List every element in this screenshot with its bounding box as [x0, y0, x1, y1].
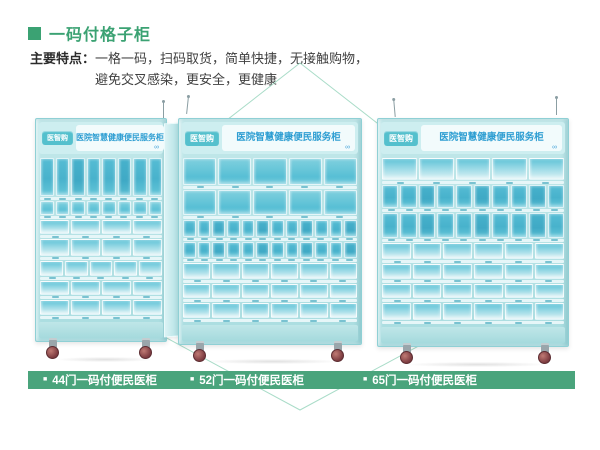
- locker-cell: [212, 303, 239, 318]
- locker-cell: [133, 239, 162, 255]
- price-tag: [346, 259, 353, 261]
- locker-cell: [535, 303, 564, 320]
- locker-cell: [437, 185, 453, 207]
- price-tag: [406, 239, 413, 241]
- locker-cell: [330, 303, 357, 318]
- locker-cell: [400, 213, 416, 238]
- price-tag: [197, 216, 204, 218]
- locker-cell: [330, 263, 357, 279]
- locker-cell: [511, 185, 527, 207]
- shelf-edge: [382, 321, 564, 324]
- price-tag: [545, 280, 552, 282]
- price-tag: [136, 198, 143, 200]
- locker-cell: [474, 303, 503, 320]
- locker-cell: [40, 300, 69, 315]
- locker-cell: [382, 264, 411, 278]
- locker-cell: [437, 213, 453, 238]
- locker-cell: [286, 242, 299, 258]
- price-tag: [274, 259, 281, 261]
- locker-cell: [133, 220, 162, 235]
- price-tag: [303, 238, 310, 240]
- price-tag: [551, 209, 558, 211]
- cabinet-title: 医院智慧健康便民服务柜: [76, 133, 164, 142]
- price-tag: [52, 236, 59, 238]
- brand-badge: 医智购: [384, 131, 418, 146]
- price-tag: [259, 259, 266, 261]
- locker-cell: [102, 201, 116, 215]
- locker-cell: [413, 264, 442, 278]
- shelf-edge: [183, 299, 357, 302]
- locker-cell: [535, 284, 564, 298]
- shelf-edge: [40, 257, 162, 260]
- locker-row: [382, 264, 564, 278]
- locker-row: [183, 220, 357, 237]
- square-bullet-icon: ■: [190, 371, 194, 389]
- price-tag: [551, 239, 558, 241]
- locker-cell: [300, 220, 313, 237]
- locker-cell: [102, 220, 131, 235]
- price-tag: [460, 239, 467, 241]
- price-tag: [454, 300, 461, 302]
- locker-grid: [179, 155, 361, 324]
- locker-cell: [315, 242, 328, 258]
- locker-cell: [40, 201, 54, 215]
- price-tag: [252, 280, 259, 282]
- price-tag: [515, 209, 522, 211]
- locker-row: [382, 303, 564, 320]
- locker-cell: [300, 263, 327, 279]
- price-tag: [82, 317, 89, 319]
- price-tag: [310, 300, 317, 302]
- shelf-edge: [40, 197, 162, 200]
- price-tag: [424, 239, 431, 241]
- caster-wheel: [139, 340, 152, 359]
- cabinet-base: [381, 327, 565, 343]
- price-tag: [216, 238, 223, 240]
- locker-cell: [492, 158, 527, 180]
- cabinet-header: 医智购 医院智慧健康便民服务柜 ∞: [39, 122, 163, 154]
- locker-cell: [548, 185, 564, 207]
- price-tag: [346, 238, 353, 240]
- caster-wheel: [46, 340, 59, 359]
- locker-row: [382, 284, 564, 298]
- caster-wheel: [193, 343, 206, 362]
- price-tag: [216, 259, 223, 261]
- shelf-edge: [183, 186, 357, 189]
- price-tag: [394, 261, 401, 263]
- locker-row: [183, 158, 357, 185]
- shelf-edge: [40, 316, 162, 319]
- price-tag: [332, 259, 339, 261]
- locker-cell: [529, 185, 545, 207]
- locker-cell: [271, 242, 284, 258]
- locker-cell: [87, 201, 101, 215]
- locker-cell: [65, 261, 88, 276]
- price-tag: [136, 216, 143, 218]
- cabinet-52-door: 医智购 医院智慧健康便民服务柜 ∞: [178, 118, 362, 345]
- price-tag: [73, 277, 80, 279]
- locker-cell: [56, 158, 70, 196]
- price-tag: [52, 257, 59, 259]
- price-tag: [232, 186, 239, 188]
- price-tag: [223, 320, 230, 322]
- price-tag: [515, 280, 522, 282]
- locker-row: [382, 243, 564, 260]
- price-tag: [469, 182, 476, 184]
- locker-cell: [492, 185, 508, 207]
- price-tag: [442, 209, 449, 211]
- locker-cell: [40, 239, 69, 255]
- locker-cell: [212, 220, 225, 237]
- locker-cell: [505, 264, 534, 278]
- locker-cell: [443, 284, 472, 298]
- price-tag: [266, 216, 273, 218]
- locker-cell: [456, 185, 472, 207]
- price-tag: [44, 198, 51, 200]
- price-tag: [194, 300, 201, 302]
- locker-row: [40, 201, 162, 215]
- locker-cell: [40, 261, 63, 276]
- price-tag: [397, 182, 404, 184]
- price-tag: [230, 259, 237, 261]
- brand-logo-icon: ∞: [345, 144, 350, 151]
- price-tag: [59, 216, 66, 218]
- locker-cell: [548, 213, 564, 238]
- price-tag: [542, 182, 549, 184]
- locker-cell: [419, 158, 454, 180]
- locker-cell: [505, 284, 534, 298]
- price-tag: [90, 216, 97, 218]
- locker-cell: [87, 158, 101, 196]
- locker-cell: [286, 220, 299, 237]
- price-tag: [515, 300, 522, 302]
- locker-cell: [529, 158, 564, 180]
- locker-cell: [271, 303, 298, 318]
- locker-row: [382, 158, 564, 180]
- brand-logo-icon: ∞: [552, 144, 557, 151]
- price-tag: [122, 277, 129, 279]
- locker-cell: [300, 242, 313, 258]
- price-tag: [497, 239, 504, 241]
- shelf-edge: [382, 260, 564, 263]
- locker-cell: [344, 220, 357, 237]
- price-tag: [310, 320, 317, 322]
- price-tag: [310, 280, 317, 282]
- cabinet-base: [39, 322, 163, 338]
- price-tag: [232, 216, 239, 218]
- price-tag: [75, 216, 82, 218]
- locker-cell: [324, 158, 357, 185]
- locker-cell: [218, 190, 251, 215]
- price-tag: [187, 259, 194, 261]
- price-tag: [424, 280, 431, 282]
- locker-cell: [315, 220, 328, 237]
- price-tag: [394, 280, 401, 282]
- locker-row: [40, 158, 162, 196]
- locker-row: [40, 220, 162, 235]
- locker-cell: [114, 261, 137, 276]
- price-tag: [281, 280, 288, 282]
- locker-cell: [242, 303, 269, 318]
- locker-cell: [271, 263, 298, 279]
- shelf-edge: [183, 238, 357, 241]
- price-tag: [339, 300, 346, 302]
- locker-cell: [474, 284, 503, 298]
- locker-cell: [183, 190, 216, 215]
- locker-cell: [183, 263, 210, 279]
- price-tag: [223, 280, 230, 282]
- locker-cell: [271, 284, 298, 299]
- price-tag: [245, 259, 252, 261]
- price-tag: [201, 259, 208, 261]
- price-tag: [52, 317, 59, 319]
- locker-cell: [474, 243, 503, 260]
- shelf-edge: [382, 299, 564, 302]
- price-tag: [317, 259, 324, 261]
- price-tag: [339, 280, 346, 282]
- locker-cell: [133, 281, 162, 295]
- price-tag: [105, 216, 112, 218]
- locker-cell: [139, 261, 162, 276]
- price-tag: [113, 257, 120, 259]
- shelf-edge: [40, 296, 162, 299]
- price-tag: [388, 239, 395, 241]
- price-tag: [146, 277, 153, 279]
- price-tag: [143, 236, 150, 238]
- locker-cell: [212, 242, 225, 258]
- price-tag: [433, 182, 440, 184]
- price-tag: [151, 216, 158, 218]
- price-tag: [113, 236, 120, 238]
- price-tag: [454, 261, 461, 263]
- price-tag: [120, 198, 127, 200]
- locker-row: [183, 303, 357, 318]
- price-tag: [545, 261, 552, 263]
- price-tag: [288, 259, 295, 261]
- locker-cell: [300, 303, 327, 318]
- locker-cell: [413, 303, 442, 320]
- price-tag: [515, 239, 522, 241]
- locker-row: [382, 213, 564, 238]
- locker-cell: [71, 281, 100, 295]
- price-tag: [485, 322, 492, 324]
- shelf-edge: [40, 277, 162, 280]
- locker-cell: [40, 281, 69, 295]
- price-tag: [332, 238, 339, 240]
- price-tag: [52, 296, 59, 298]
- locker-cell: [289, 158, 322, 185]
- price-tag: [143, 317, 150, 319]
- price-tag: [252, 300, 259, 302]
- price-tag: [515, 322, 522, 324]
- price-tag: [424, 322, 431, 324]
- locker-cell: [474, 185, 490, 207]
- locker-row: [183, 284, 357, 299]
- price-tag: [143, 296, 150, 298]
- locker-cell: [253, 190, 286, 215]
- square-bullet-icon: ■: [43, 371, 47, 389]
- locker-cell: [212, 263, 239, 279]
- price-tag: [485, 300, 492, 302]
- locker-cell: [40, 220, 69, 235]
- price-tag: [485, 261, 492, 263]
- locker-cell: [183, 284, 210, 299]
- price-tag: [194, 280, 201, 282]
- product-label-text: 44门一码付便民医柜: [52, 372, 157, 388]
- locker-cell: [198, 220, 211, 237]
- price-tag: [82, 257, 89, 259]
- price-tag: [105, 198, 112, 200]
- locker-cell: [71, 239, 100, 255]
- price-tag: [49, 277, 56, 279]
- cabinet-65-door: 医智购 医院智慧健康便民服务柜 ∞: [377, 118, 569, 347]
- price-tag: [460, 209, 467, 211]
- locker-cell: [102, 300, 131, 315]
- locker-row: [40, 300, 162, 315]
- price-tag: [281, 320, 288, 322]
- cabinet-base: [182, 325, 358, 341]
- locker-cell: [289, 190, 322, 215]
- price-tag: [82, 236, 89, 238]
- locker-cell: [300, 284, 327, 299]
- locker-cell: [183, 158, 216, 185]
- price-tag: [545, 322, 552, 324]
- locker-cell: [419, 213, 435, 238]
- price-tag: [388, 209, 395, 211]
- price-tag: [75, 198, 82, 200]
- price-tag: [281, 300, 288, 302]
- locker-cell: [413, 243, 442, 260]
- shelf-edge: [183, 280, 357, 283]
- locker-row: [40, 281, 162, 295]
- shelf-edge: [183, 319, 357, 322]
- price-tag: [97, 277, 104, 279]
- price-tag: [259, 238, 266, 240]
- cabinet-44-door: 医智购 医院智慧健康便民服务柜 ∞: [35, 118, 167, 342]
- locker-cell: [133, 300, 162, 315]
- caster-wheel: [331, 343, 344, 362]
- price-tag: [113, 296, 120, 298]
- locker-cell: [529, 213, 545, 238]
- price-tag: [317, 238, 324, 240]
- locker-cell: [456, 213, 472, 238]
- locker-cell: [183, 220, 196, 237]
- product-label-44: ■ 44门一码付便民医柜: [43, 371, 157, 389]
- shelf-edge: [183, 216, 357, 219]
- price-tag: [479, 239, 486, 241]
- locker-cell: [535, 243, 564, 260]
- locker-cell: [118, 158, 132, 196]
- price-tag: [274, 238, 281, 240]
- locker-cell: [382, 185, 398, 207]
- locker-cell: [382, 243, 411, 260]
- locker-cell: [474, 264, 503, 278]
- locker-cell: [133, 158, 147, 196]
- price-tag: [394, 300, 401, 302]
- shelf-edge: [382, 181, 564, 184]
- locker-row: [183, 263, 357, 279]
- price-tag: [151, 198, 158, 200]
- locker-cell: [90, 261, 113, 276]
- price-tag: [266, 186, 273, 188]
- product-label-text: 65门一码付便民医柜: [372, 372, 477, 388]
- price-tag: [113, 317, 120, 319]
- locker-cell: [71, 201, 85, 215]
- square-bullet-icon: ■: [363, 371, 367, 389]
- locker-cell: [183, 303, 210, 318]
- locker-cell: [330, 220, 343, 237]
- locker-cell: [330, 242, 343, 258]
- locker-cell: [474, 213, 490, 238]
- locker-cell: [183, 242, 196, 258]
- locker-row: [183, 242, 357, 258]
- locker-cell: [382, 213, 398, 238]
- product-label-52: ■ 52门一码付便民医柜: [190, 371, 304, 389]
- price-tag: [533, 209, 540, 211]
- locker-cell: [242, 284, 269, 299]
- locker-cell: [102, 281, 131, 295]
- brand-badge: 医智购: [185, 131, 219, 146]
- header-plate: 医院智慧健康便民服务柜 ∞: [222, 125, 355, 151]
- shelf-edge: [183, 259, 357, 262]
- price-tag: [230, 238, 237, 240]
- product-label-text: 52门一码付便民医柜: [199, 372, 304, 388]
- product-page: 一码付格子柜 主要特点：一格一码，扫码取货，简单快捷，无接触购物， 避免交叉感染…: [0, 0, 600, 450]
- price-tag: [223, 300, 230, 302]
- brand-badge: 医智购: [42, 131, 73, 145]
- locker-row: [183, 190, 357, 215]
- cabinet-header: 医智购 医院智慧健康便民服务柜 ∞: [182, 122, 358, 154]
- locker-cell: [443, 303, 472, 320]
- locker-cell: [227, 220, 240, 237]
- price-tag: [479, 209, 486, 211]
- locker-cell: [443, 243, 472, 260]
- price-tag: [90, 198, 97, 200]
- cabinet-title: 医院智慧健康便民服务柜: [439, 132, 544, 143]
- locker-cell: [344, 242, 357, 258]
- caster-wheel: [538, 345, 551, 364]
- price-tag: [506, 182, 513, 184]
- caster-wheel: [400, 345, 413, 364]
- shelf-edge: [40, 235, 162, 238]
- antenna-wire: [556, 98, 557, 115]
- price-tag: [406, 209, 413, 211]
- locker-cell: [492, 213, 508, 238]
- locker-cell: [40, 158, 54, 196]
- price-tag: [442, 239, 449, 241]
- locker-cell: [382, 158, 417, 180]
- header-plate: 医院智慧健康便民服务柜 ∞: [76, 125, 164, 151]
- open-door-panel: [164, 123, 179, 338]
- price-tag: [394, 322, 401, 324]
- price-tag: [82, 296, 89, 298]
- locker-cell: [419, 185, 435, 207]
- locker-cell: [382, 303, 411, 320]
- locker-cell: [227, 242, 240, 258]
- locker-cell: [71, 300, 100, 315]
- antenna-wire: [163, 102, 164, 119]
- price-tag: [59, 198, 66, 200]
- locker-cell: [505, 303, 534, 320]
- price-tag: [545, 300, 552, 302]
- locker-cell: [218, 158, 251, 185]
- price-tag: [454, 280, 461, 282]
- locker-row: [40, 261, 162, 276]
- locker-cell: [56, 201, 70, 215]
- price-tag: [485, 280, 492, 282]
- price-tag: [187, 238, 194, 240]
- price-tag: [424, 261, 431, 263]
